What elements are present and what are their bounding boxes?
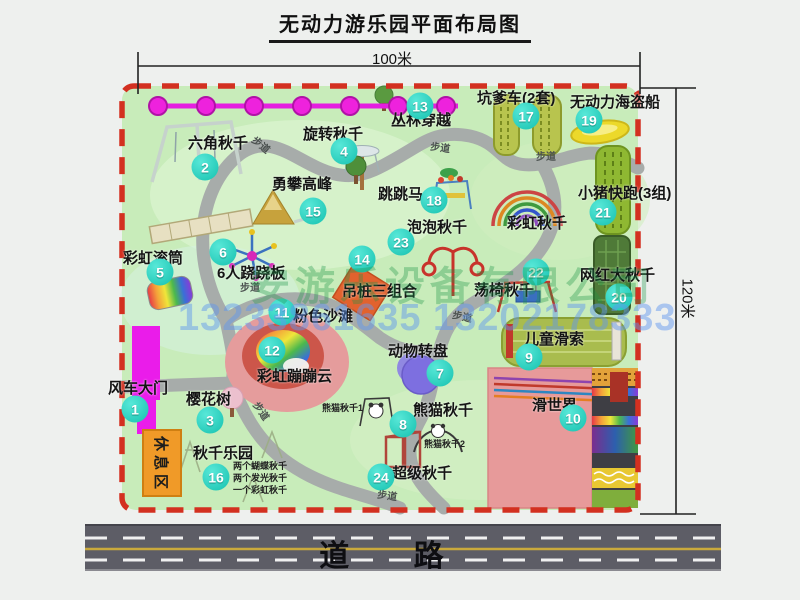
attraction-label-17: 坑爹车(2套) <box>477 91 555 106</box>
park-layout-map: 无动力游乐园平面布局图 100米 120米 休息区 道 路 风车大门1六角秋千2… <box>0 0 800 600</box>
attraction-badge-10: 10 <box>560 405 587 432</box>
attraction-label-7: 动物转盘 <box>388 344 448 359</box>
extra-label-3: 两个蝴蝶秋千 <box>233 462 287 471</box>
slide-world-icon <box>488 368 638 508</box>
attraction-badge-1: 1 <box>122 396 149 423</box>
height-dimension-label: 120米 <box>678 278 699 318</box>
attraction-label-12: 彩虹蹦蹦云 <box>257 369 332 384</box>
attraction-badge-23: 23 <box>388 229 415 256</box>
attraction-badge-15: 15 <box>300 198 327 225</box>
attraction-badge-8: 8 <box>390 411 417 438</box>
attraction-badge-7: 7 <box>427 360 454 387</box>
attraction-badge-2: 2 <box>192 154 219 181</box>
attraction-label-16: 秋千乐园 <box>193 446 253 461</box>
attraction-badge-16: 16 <box>203 464 230 491</box>
attraction-badge-4: 4 <box>331 138 358 165</box>
attraction-badge-3: 3 <box>197 407 224 434</box>
rest-area-label: 休息区 <box>151 436 172 493</box>
width-dimension-label: 100米 <box>372 48 412 69</box>
walkway-label-2: 步道 <box>536 153 556 163</box>
attraction-label-18: 跳跳马 <box>378 187 423 202</box>
page-title: 无动力游乐园平面布局图 <box>269 8 531 43</box>
attraction-badge-24: 24 <box>368 464 395 491</box>
attraction-badge-6: 6 <box>210 239 237 266</box>
extra-label-5: 一个彩虹秋千 <box>233 486 287 495</box>
attraction-badge-5: 5 <box>147 259 174 286</box>
extra-label-1: 熊猫秋千1 <box>322 404 363 413</box>
watermark-phone: 13233861635 13202178333 <box>178 297 677 340</box>
extra-label-2: 熊猫秋千2 <box>424 440 465 449</box>
attraction-label-15: 勇攀高峰 <box>272 177 332 192</box>
attraction-label-2: 六角秋千 <box>188 136 248 151</box>
attraction-badge-13: 13 <box>407 93 434 120</box>
attraction-label-21: 小猪快跑(3组) <box>578 186 671 201</box>
attraction-label-24: 超级秋千 <box>392 466 452 481</box>
attraction-badge-12: 12 <box>259 337 286 364</box>
attraction-label-23: 泡泡秋千 <box>407 220 467 235</box>
attraction-badge-21: 21 <box>590 199 617 226</box>
attraction-badge-18: 18 <box>421 187 448 214</box>
attraction-label-8: 熊猫秋千 <box>413 403 473 418</box>
attraction-label-3: 樱花树 <box>186 392 231 407</box>
attraction-label-1: 风车大门 <box>108 381 168 396</box>
attraction-badge-17: 17 <box>513 103 540 130</box>
road-label: 道 路 <box>319 531 471 575</box>
attraction-label-4: 旋转秋千 <box>303 127 363 142</box>
attraction-badge-19: 19 <box>576 107 603 134</box>
extra-label-0: 彩虹秋千 <box>507 216 567 231</box>
attraction-badge-9: 9 <box>516 344 543 371</box>
extra-label-4: 两个发光秋千 <box>233 474 287 483</box>
